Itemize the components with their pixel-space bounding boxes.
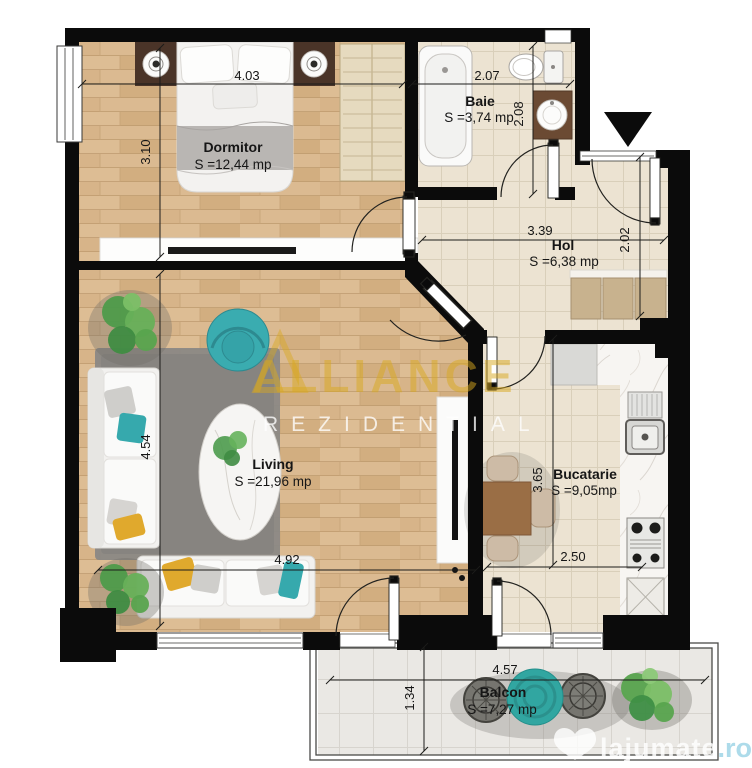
plant-top-left: [88, 290, 172, 366]
kitchen-window: [553, 633, 603, 648]
room-label-bucatarie: Bucatarie: [553, 466, 617, 482]
wardrobe: [340, 44, 405, 181]
chair: [487, 536, 518, 561]
dim-bucatarie-width: 2.50: [560, 549, 585, 564]
dim-baie-width: 2.07: [474, 68, 499, 83]
floor-plan: 4.03 3.10 2.07 2.08 3.39 2.02 4.92 4.54 …: [0, 0, 752, 768]
room-label-balcon: Balcon: [480, 684, 527, 700]
living-window: [157, 633, 303, 648]
dim-dormitor-height: 3.10: [138, 139, 153, 164]
site-watermark: lajumate.ro: [554, 728, 752, 763]
kitchen-drainer: [628, 392, 662, 418]
living-balcony-threshold: [340, 634, 395, 647]
room-area-balcon: S =7,27 mp: [467, 702, 536, 717]
room-area-hol: S =6,38 mp: [529, 254, 598, 269]
dim-balcon-height: 1.34: [402, 685, 417, 710]
room-area-living: S =21,96 mp: [235, 474, 312, 489]
dim-bucatarie-height: 3.65: [530, 467, 545, 492]
site-watermark-text: lajumate.ro: [600, 733, 752, 763]
dim-living-height: 4.54: [138, 434, 153, 459]
kitchen-sink: [626, 420, 664, 454]
bedroom-window: [57, 46, 82, 142]
entrance-threshold: [580, 151, 656, 161]
dim-hol-width: 3.39: [527, 223, 552, 238]
dim-living-width: 4.92: [274, 552, 299, 567]
tv-console: [100, 238, 418, 264]
room-area-baie: S =3,74 mp: [444, 110, 513, 125]
room-area-bucatarie: S =9,05mp: [551, 483, 617, 498]
room-label-living: Living: [252, 456, 293, 472]
balcony-chair: [561, 674, 605, 718]
entrance-arrow-icon: [604, 112, 652, 147]
bathtub: [419, 46, 472, 166]
dining-table: [482, 482, 531, 535]
tv-icon: [168, 247, 296, 254]
chair: [487, 456, 518, 481]
fridge-space: [627, 578, 664, 616]
kitchen-balcony-threshold: [497, 634, 551, 647]
bathroom-vent: [545, 30, 571, 43]
brand-watermark-text: ALLIANCE: [252, 350, 517, 402]
room-label-baie: Baie: [465, 93, 495, 109]
floor-plan-drawing: 4.03 3.10 2.07 2.08 3.39 2.02 4.92 4.54 …: [0, 0, 752, 768]
bathroom-vanity: [533, 91, 572, 139]
room-area-dormitor: S =12,44 mp: [195, 157, 272, 172]
room-label-hol: Hol: [552, 237, 575, 253]
dim-hol-height: 2.02: [617, 227, 632, 252]
room-label-dormitor: Dormitor: [203, 139, 263, 155]
brand-watermark: ALLIANCE REZIDENTIAL: [252, 336, 543, 436]
brand-watermark-sub: REZIDENTIAL: [263, 413, 543, 436]
stove: [627, 518, 664, 568]
kitchen-cabinet: [551, 344, 597, 385]
dim-dormitor-width: 4.03: [234, 68, 259, 83]
hallway-closet: [570, 270, 667, 319]
dim-balcon-width: 4.57: [492, 662, 517, 677]
